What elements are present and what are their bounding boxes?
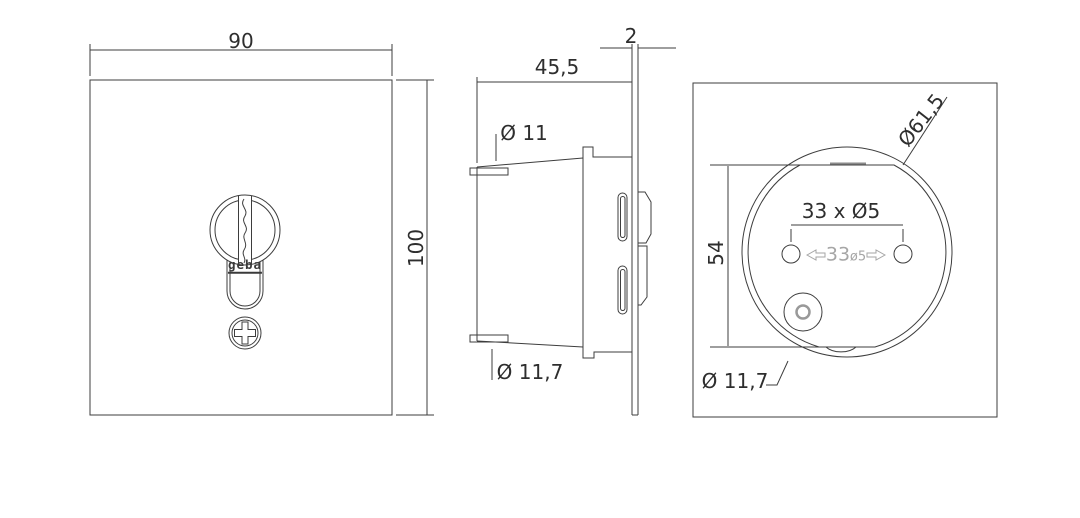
top-knockout-cap [470,168,508,175]
mount-slot-top [618,193,627,241]
side-cylinder-protrusion [638,192,651,305]
emboss-arrow-left-icon [807,250,825,260]
phillips-cross-icon [235,322,256,344]
side-top-knockout-label: Ø 11 [500,123,548,143]
front-height-label: 100 [406,229,426,267]
back-cable-entry-label: Ø 11,7 [702,371,769,391]
emboss-arrow-right-icon [867,250,885,260]
back-spacing-dimension [791,225,903,242]
front-view [90,44,434,415]
cable-entry-boss [784,293,822,331]
geba-logo: geba [228,259,262,274]
housing-top-tab [583,147,632,158]
mount-hole-left [782,245,800,263]
bottom-knockout-cap [470,335,508,342]
side-thickness-label: 2 [625,26,638,46]
embossed-spacing-value: 33 [826,246,850,265]
housing-bottom-tab [583,347,632,358]
phillips-screw [229,317,261,349]
side-bottom-knockout-label: Ø 11,7 [497,362,564,382]
technical-drawing: 90 100 45,5 2 Ø 11 Ø 11,7 33 x Ø5 54 Ø61… [0,0,1080,518]
back-cable-entry-leader [766,361,788,385]
mount-slot-bottom [618,266,627,314]
side-housing-box [470,147,632,358]
key-cylinder [210,195,280,309]
side-depth-dimension [477,77,632,163]
bottom-tab-bump [826,347,856,352]
mount-hole-right [894,245,912,263]
back-hole-spacing-label: 33 x Ø5 [802,201,880,221]
back-height-dimension [710,165,844,347]
side-front-plate [632,44,638,415]
side-depth-label: 45,5 [535,57,580,77]
front-width-label: 90 [228,31,253,51]
embossed-hole-dia: ø5 [850,251,866,264]
back-flat-height-label: 54 [706,240,726,265]
